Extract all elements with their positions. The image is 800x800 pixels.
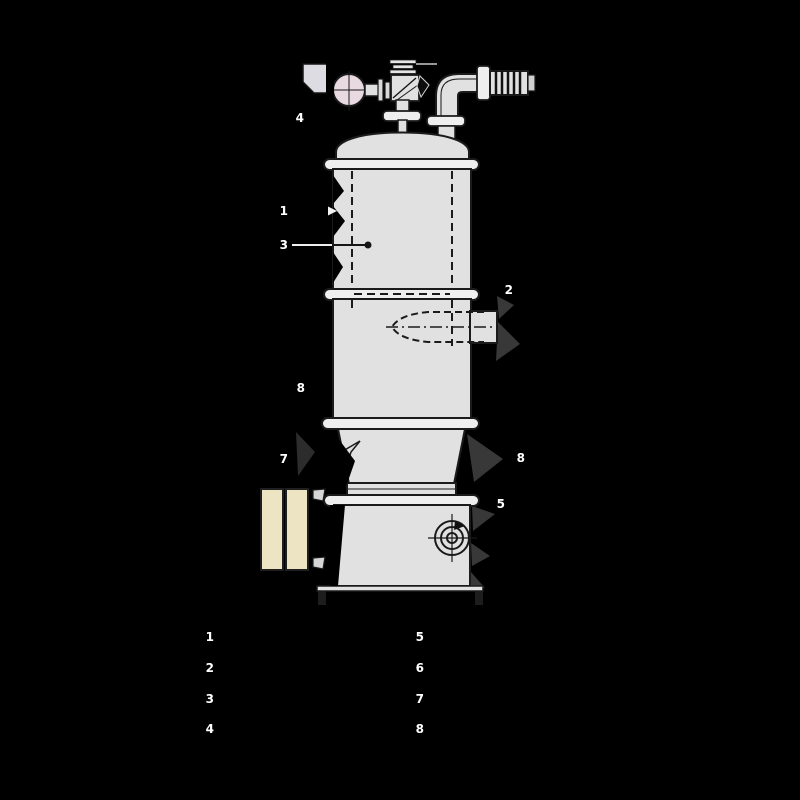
lower-cylinder: [333, 299, 471, 419]
legend-item-7: 7: [416, 693, 425, 705]
vessel-cutaway-diagram: [0, 0, 800, 800]
callout-8-left: 8: [297, 382, 306, 394]
legend-item-6: 6: [416, 662, 425, 674]
callout-8-right: 8: [517, 452, 526, 464]
legend-item-5: 5: [416, 631, 425, 643]
callout-5: 5: [497, 498, 506, 510]
cone-outlet-band: [347, 483, 456, 495]
clamp-band: [322, 418, 479, 429]
vessel-dome: [336, 133, 469, 161]
vent-muffler-icon: [390, 60, 416, 74]
silencer-clip-bottom: [313, 557, 325, 569]
diagram-canvas: 4 1 3 2 8 7 8 5 1 2 3 4 5 6 7 8: [0, 0, 800, 800]
silencer-clip-top: [313, 489, 325, 501]
upper-cylinder: [333, 169, 471, 290]
legend-item-4: 4: [206, 723, 215, 735]
callout-1: 1: [280, 205, 289, 217]
callout-4: 4: [296, 112, 305, 124]
silencer-cartridge: [261, 489, 325, 570]
base-bar: [317, 586, 483, 605]
outlet-elbow: [427, 66, 490, 139]
callout-2: 2: [505, 284, 514, 296]
legend-item-1: 1: [206, 631, 215, 643]
legend-item-2: 2: [206, 662, 215, 674]
legend-item-3: 3: [206, 693, 215, 705]
callout-7: 7: [280, 453, 289, 465]
cone-section: [338, 429, 465, 484]
hose-barb-fitting: [490, 71, 535, 95]
air-supply-stub: [303, 64, 327, 93]
legend-item-8: 8: [416, 723, 425, 735]
collection-bin: [334, 505, 470, 586]
callout-3: 3: [280, 239, 289, 251]
